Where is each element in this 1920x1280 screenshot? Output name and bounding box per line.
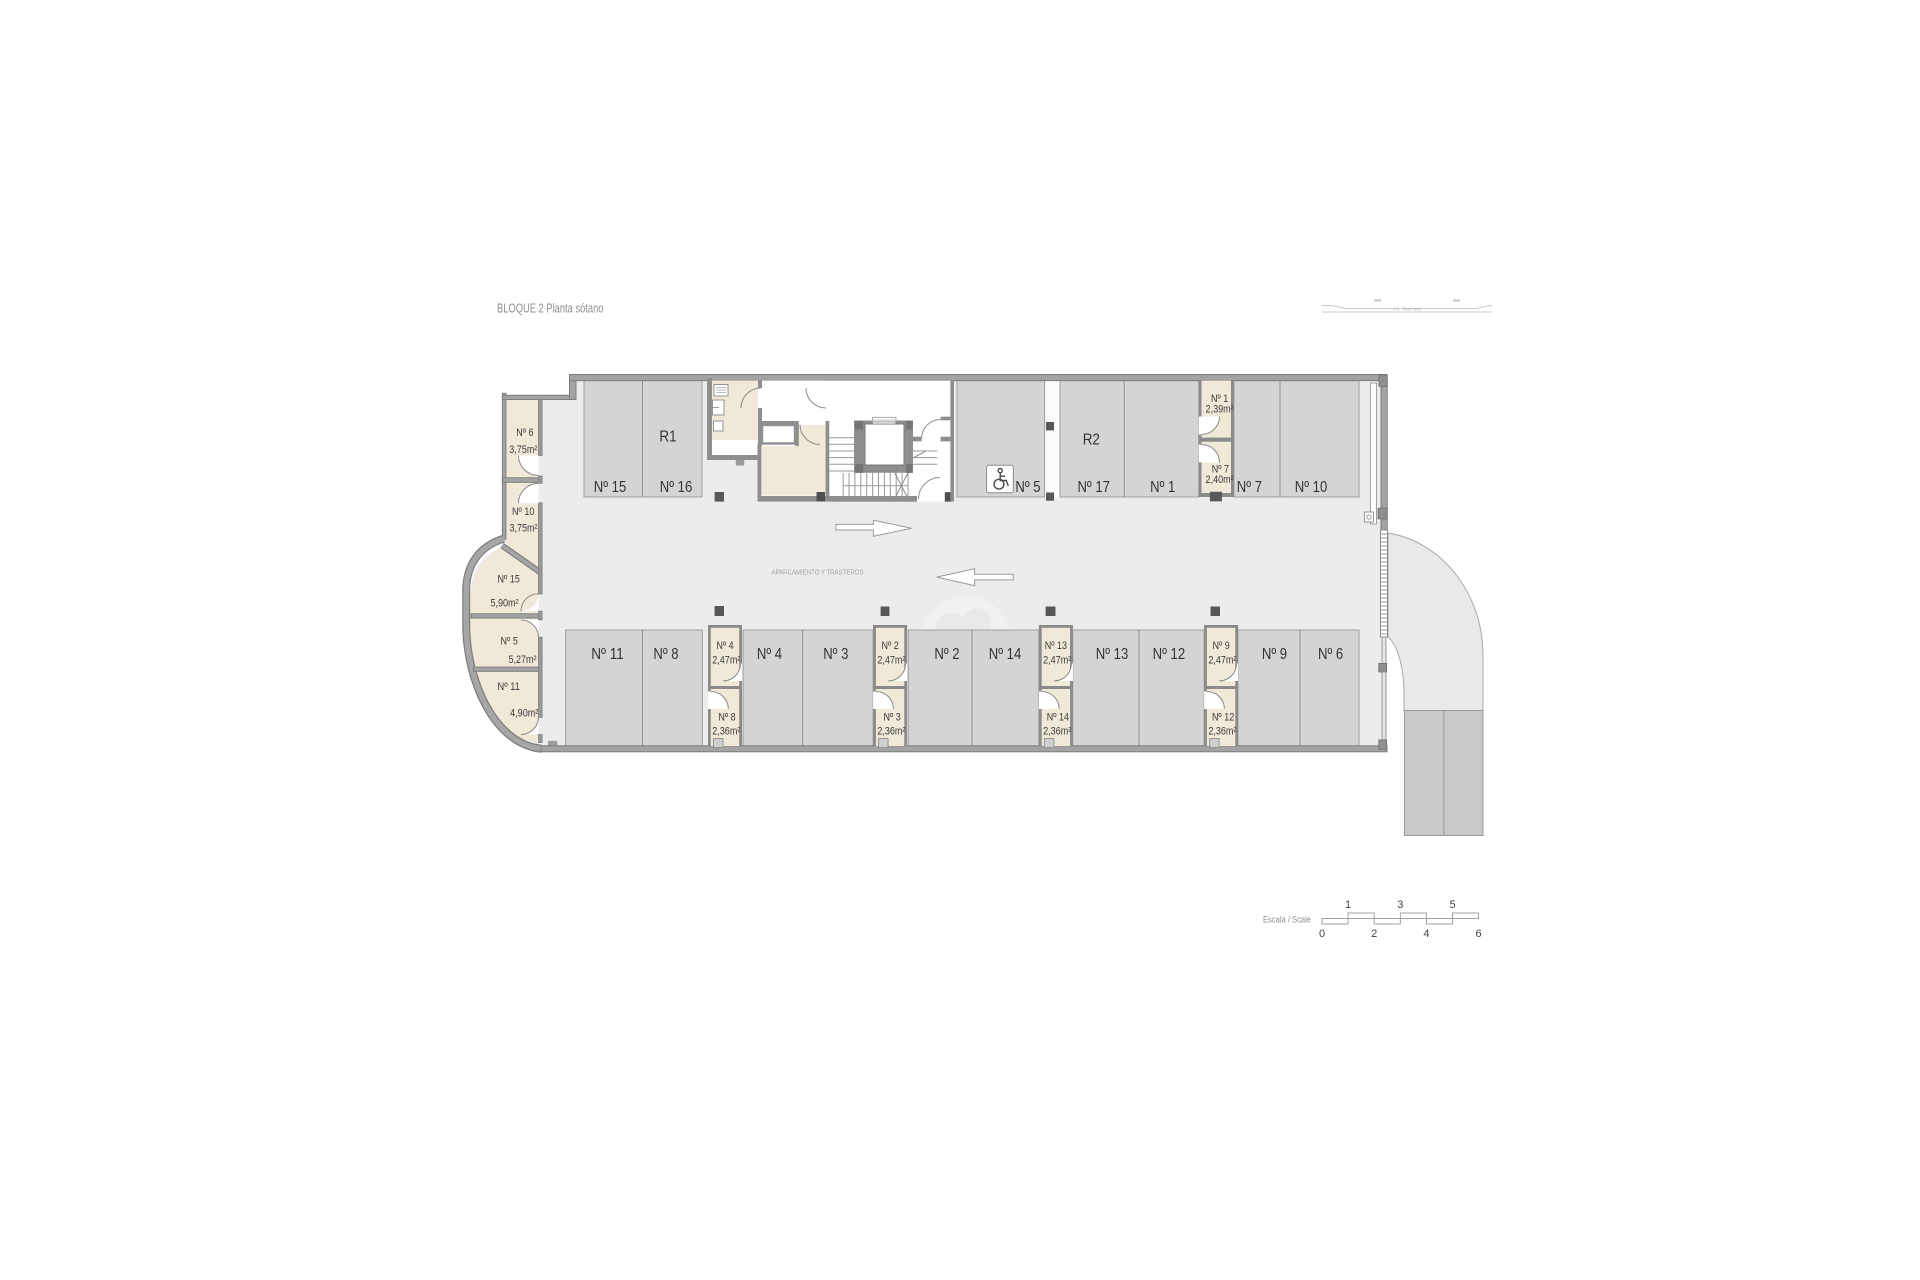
svg-text:Nº 14: Nº 14 bbox=[1047, 711, 1069, 723]
svg-text:2,47m²: 2,47m² bbox=[1208, 655, 1236, 667]
svg-text:4: 4 bbox=[1423, 928, 1429, 940]
svg-text:APARCAMIENTO Y TRASTEROS: APARCAMIENTO Y TRASTEROS bbox=[772, 567, 864, 576]
svg-text:6: 6 bbox=[1476, 928, 1482, 940]
svg-text:3,75m²: 3,75m² bbox=[509, 444, 537, 456]
svg-text:2,47m²: 2,47m² bbox=[712, 655, 740, 667]
svg-text:R1: R1 bbox=[659, 429, 676, 446]
svg-text:1: 1 bbox=[1345, 899, 1351, 911]
svg-text:2,36m²: 2,36m² bbox=[712, 726, 740, 738]
svg-text:R2: R2 bbox=[1083, 432, 1100, 449]
svg-text:2,39m²: 2,39m² bbox=[1206, 404, 1234, 416]
svg-text:Nº 11: Nº 11 bbox=[591, 646, 624, 663]
svg-text:Nº 7: Nº 7 bbox=[1237, 479, 1262, 496]
svg-text:Nº 11: Nº 11 bbox=[498, 681, 520, 693]
svg-text:0: 0 bbox=[1319, 928, 1325, 940]
svg-text:4,90m²: 4,90m² bbox=[510, 707, 538, 719]
svg-text:Nº 6: Nº 6 bbox=[1318, 646, 1343, 663]
svg-text:2: 2 bbox=[1371, 928, 1377, 940]
svg-text:Nº 5: Nº 5 bbox=[1015, 479, 1040, 496]
svg-text:Nº 10: Nº 10 bbox=[512, 506, 534, 518]
svg-text:Nº 8: Nº 8 bbox=[718, 711, 735, 723]
svg-text:Escala / Scale: Escala / Scale bbox=[1263, 915, 1311, 925]
svg-text:Nº 3: Nº 3 bbox=[823, 646, 848, 663]
svg-text:Nº 15: Nº 15 bbox=[594, 479, 627, 496]
svg-text:Nº 6: Nº 6 bbox=[516, 427, 533, 439]
svg-text:5,90m²: 5,90m² bbox=[490, 598, 518, 610]
svg-text:Nº 10: Nº 10 bbox=[1295, 479, 1328, 496]
svg-text:3: 3 bbox=[1397, 899, 1403, 911]
svg-text:BLOQUE 2 Planta sótano: BLOQUE 2 Planta sótano bbox=[497, 301, 604, 316]
svg-text:Nº 9: Nº 9 bbox=[1262, 646, 1287, 663]
svg-text:2,36m²: 2,36m² bbox=[1043, 726, 1071, 738]
svg-text:Nº 9: Nº 9 bbox=[1212, 640, 1229, 652]
svg-text:Nº 14: Nº 14 bbox=[989, 646, 1022, 663]
svg-text:5,27m²: 5,27m² bbox=[508, 654, 536, 666]
svg-text:2,36m²: 2,36m² bbox=[877, 726, 905, 738]
svg-text:Nº 13: Nº 13 bbox=[1096, 646, 1129, 663]
svg-text:Nº 5: Nº 5 bbox=[501, 635, 518, 647]
svg-text:2,40m²: 2,40m² bbox=[1206, 474, 1234, 486]
svg-text:Nº 15: Nº 15 bbox=[498, 574, 520, 586]
svg-text:Nº 8: Nº 8 bbox=[653, 646, 678, 663]
svg-text:5: 5 bbox=[1449, 899, 1455, 911]
svg-text:Nº 2: Nº 2 bbox=[881, 640, 898, 652]
svg-text:Nº 13: Nº 13 bbox=[1045, 640, 1067, 652]
svg-text:Nº 12: Nº 12 bbox=[1212, 711, 1234, 723]
svg-text:Nº 17: Nº 17 bbox=[1077, 479, 1110, 496]
svg-text:3,75m²: 3,75m² bbox=[509, 522, 537, 534]
svg-text:Nº 4: Nº 4 bbox=[757, 646, 782, 663]
svg-text:Nº 2: Nº 2 bbox=[934, 646, 959, 663]
svg-text:2,47m²: 2,47m² bbox=[877, 655, 905, 667]
svg-text:2,47m²: 2,47m² bbox=[1043, 655, 1071, 667]
svg-text:Nº 12: Nº 12 bbox=[1153, 646, 1186, 663]
svg-text:Nº 16: Nº 16 bbox=[660, 479, 693, 496]
svg-text:2,36m²: 2,36m² bbox=[1208, 726, 1236, 738]
svg-text:Nº 1: Nº 1 bbox=[1150, 479, 1175, 496]
svg-text:Nº 4: Nº 4 bbox=[716, 640, 733, 652]
svg-text:s-01 · Block West: s-01 · Block West bbox=[1393, 307, 1422, 312]
svg-text:Nº 3: Nº 3 bbox=[883, 711, 900, 723]
